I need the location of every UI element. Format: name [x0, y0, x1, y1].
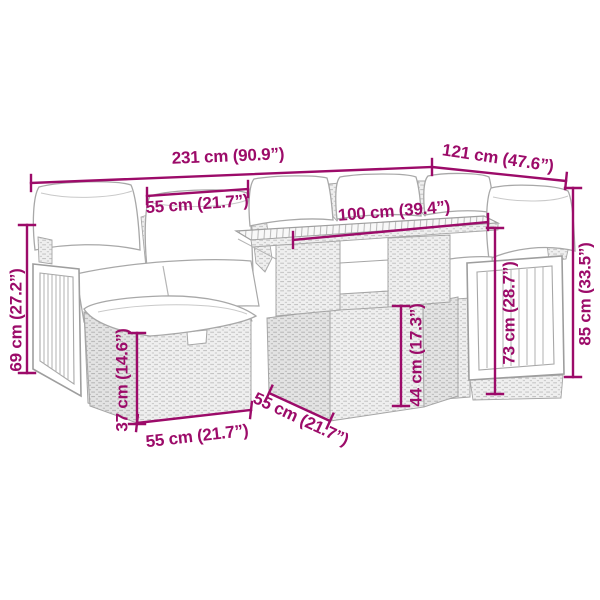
table-base-right — [388, 235, 450, 307]
storage-box-right — [423, 297, 458, 407]
footstool — [84, 296, 256, 423]
dimension-label-side-panel-height: 73 cm (28.7”) — [501, 261, 518, 364]
back-cushion — [249, 176, 333, 226]
dimension-label-backrest-height: 69 cm (27.2”) — [8, 268, 25, 371]
dimension-label-overall-width: 231 cm (90.9”) — [171, 145, 284, 167]
dimension-label-overall-height: 85 cm (33.5”) — [577, 242, 594, 345]
back-cushion — [487, 185, 575, 259]
dimension-label-table-height: 44 cm (17.3”) — [408, 303, 425, 406]
table-base-left — [276, 238, 340, 316]
table-shelf-opening — [340, 260, 388, 294]
dimension-diagram: 231 cm (90.9”) 121 cm (47.6”) 55 cm (21.… — [0, 0, 600, 600]
dimension-label-footstool-height: 37 cm (14.6”) — [114, 328, 131, 431]
